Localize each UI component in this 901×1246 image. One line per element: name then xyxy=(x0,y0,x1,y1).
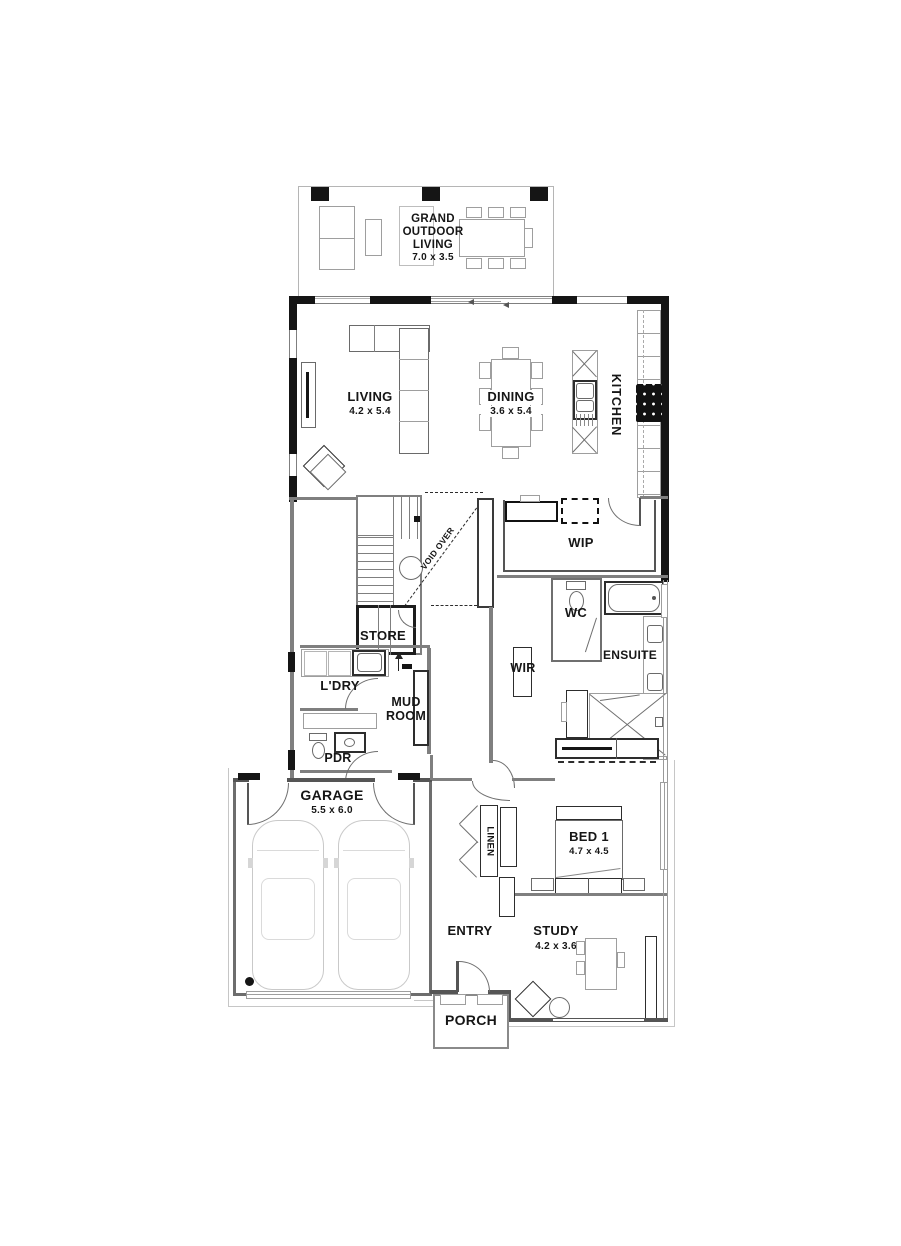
slab-line xyxy=(674,760,675,1027)
porch-label: PORCH xyxy=(440,1013,502,1029)
wall xyxy=(515,893,668,896)
toilet-cistern xyxy=(309,733,327,741)
bench-divider xyxy=(588,878,589,894)
wall xyxy=(289,303,669,304)
lounge-chair xyxy=(515,981,552,1018)
stair-bulkhead xyxy=(477,498,494,608)
desk-chair xyxy=(576,961,585,975)
window xyxy=(661,584,668,618)
porch-step xyxy=(477,994,503,1005)
wall xyxy=(290,500,294,780)
door-slide-arrow-icon xyxy=(468,299,474,305)
wall xyxy=(287,778,375,782)
tv xyxy=(306,372,309,418)
desk-drawer xyxy=(617,952,625,968)
bed1-dims: 4.7 x 4.5 xyxy=(560,847,618,858)
laundry-sink-bowl xyxy=(357,653,382,672)
door-lintel xyxy=(398,773,420,780)
sofa-divider xyxy=(399,421,429,422)
bifold-door xyxy=(459,841,478,860)
bedhead-shelf xyxy=(556,806,622,820)
wall xyxy=(640,496,668,499)
step-arrow-icon xyxy=(395,652,403,659)
basin xyxy=(647,625,663,643)
bifold-door xyxy=(459,824,478,843)
car-windshield xyxy=(343,850,405,851)
pdr-basin-bowl xyxy=(344,738,355,747)
outdoor-chair xyxy=(488,207,504,218)
slab-line xyxy=(228,1006,433,1007)
sink-drainer xyxy=(576,414,594,426)
wall xyxy=(370,296,431,304)
car-roof xyxy=(261,878,315,940)
newel-post xyxy=(414,516,420,522)
stacker-door xyxy=(431,298,552,299)
door-lintel xyxy=(238,773,260,780)
sink-bowl xyxy=(576,383,594,399)
kitchen-label: KITCHEN xyxy=(609,367,623,443)
fridge-space xyxy=(561,498,599,524)
bedside-table xyxy=(623,878,645,891)
wc-label: WC xyxy=(556,606,596,621)
porch-step xyxy=(440,994,466,1005)
basin xyxy=(647,673,663,691)
sofa-divider xyxy=(374,325,375,352)
window-jamb xyxy=(288,652,295,672)
sink-bowl xyxy=(576,400,594,412)
outdoor-chair xyxy=(510,258,526,269)
stair-line xyxy=(358,535,394,536)
front-door-arc xyxy=(459,961,490,992)
linen-label: LINEN xyxy=(484,813,495,869)
void-dashed-line xyxy=(425,492,483,493)
window-jamb xyxy=(288,750,295,770)
shower-head-icon xyxy=(655,717,663,727)
desk-chair xyxy=(576,941,585,955)
slab-line xyxy=(509,1026,675,1027)
ensuite-cabinet-knob xyxy=(561,702,567,722)
outdoor-chair xyxy=(488,258,504,269)
car-mirror xyxy=(409,858,414,868)
wall xyxy=(289,497,356,500)
bifold-door xyxy=(459,805,478,824)
outdoor-chair xyxy=(524,228,533,248)
slab-line xyxy=(414,1000,433,1001)
wall xyxy=(430,755,433,780)
wall xyxy=(512,778,555,781)
stacker-door xyxy=(431,301,501,302)
car-roof xyxy=(347,878,401,940)
ensuite-label: ENSUITE xyxy=(596,649,664,662)
garage-label: GARAGE xyxy=(290,788,374,804)
wall xyxy=(289,358,297,454)
pdr-label: PDR xyxy=(316,751,360,765)
sofa-divider xyxy=(399,390,429,391)
outdoor-side-table xyxy=(365,219,382,256)
pdr-shelf xyxy=(303,713,377,729)
washing-machine xyxy=(304,651,327,676)
dining-dims: 3.6 x 5.4 xyxy=(481,406,541,417)
outdoor-living-label: GRAND OUTDOOR LIVING xyxy=(390,213,476,252)
dining-chair xyxy=(479,362,491,379)
void-over-label: VOID OVER xyxy=(416,521,460,577)
hall-cabinet xyxy=(499,877,515,917)
stair-divider xyxy=(393,497,394,605)
car-windshield xyxy=(257,850,319,851)
entry-label: ENTRY xyxy=(444,924,496,939)
bed1-label: BED 1 xyxy=(560,830,618,845)
wall xyxy=(289,296,297,330)
dining-label: DINING xyxy=(481,390,541,405)
wip-bench-notch xyxy=(520,495,540,502)
dining-chair xyxy=(502,347,519,359)
hall-cabinet xyxy=(500,807,517,867)
study-label: STUDY xyxy=(530,924,582,939)
stair-treads xyxy=(358,537,394,605)
bedside-table xyxy=(531,878,554,891)
laundry-label: L'DRY xyxy=(312,679,368,694)
toilet-cistern xyxy=(566,581,586,590)
bifold-door xyxy=(459,860,477,878)
wall xyxy=(289,296,669,297)
bath-tap-icon xyxy=(652,596,656,600)
wardrobe-rail xyxy=(562,747,612,750)
small-annotation-mark xyxy=(402,664,412,669)
side-table-round xyxy=(549,997,570,1018)
post xyxy=(422,187,440,201)
living-dims: 4.2 x 5.4 xyxy=(340,406,400,417)
washing-machine xyxy=(328,651,351,676)
cooktop xyxy=(636,384,662,422)
wardrobe-shelf-dashed xyxy=(558,761,656,763)
mudroom-label: MUD ROOM xyxy=(380,695,432,723)
wall xyxy=(432,778,472,781)
step-arrow-line xyxy=(398,658,399,671)
floor-plan: GRAND OUTDOOR LIVING 7.0 x 3.5 LIVING 4.… xyxy=(0,0,901,1246)
window-midline xyxy=(664,782,665,870)
garage-dims: 5.5 x 6.0 xyxy=(290,805,374,816)
door-slide-arrow-icon xyxy=(503,302,509,308)
garage-door-line xyxy=(246,994,411,995)
sofa-chaise xyxy=(399,328,429,454)
garage-door-panel xyxy=(246,991,411,999)
dining-chair xyxy=(531,362,543,379)
living-label: LIVING xyxy=(340,390,400,405)
desk xyxy=(585,938,617,990)
post xyxy=(530,187,548,201)
sofa-divider xyxy=(399,359,429,360)
wall xyxy=(552,296,577,304)
outdoor-sofa-divider xyxy=(320,238,354,239)
car-mirror xyxy=(334,858,339,868)
car-mirror xyxy=(323,858,328,868)
outdoor-living-dims: 7.0 x 3.5 xyxy=(390,252,476,263)
void-dashed-line xyxy=(431,605,477,606)
floor-waste-icon xyxy=(245,977,254,986)
wall xyxy=(489,607,493,763)
outdoor-chair xyxy=(510,207,526,218)
wip-bench xyxy=(505,501,558,522)
wardrobe-divider xyxy=(616,738,617,759)
wall xyxy=(661,296,669,582)
dining-chair xyxy=(502,447,519,459)
slab-line xyxy=(228,768,229,1006)
wall xyxy=(300,645,430,648)
store-label: STORE xyxy=(356,629,410,644)
bed1-door-arc xyxy=(472,781,510,801)
wip-label: WIP xyxy=(556,536,606,551)
ensuite-cabinet xyxy=(566,690,588,738)
wir-label: WIR xyxy=(505,661,541,675)
car-mirror xyxy=(248,858,253,868)
post xyxy=(311,187,329,201)
window-midline xyxy=(553,1019,644,1021)
bookshelf xyxy=(645,936,657,1022)
study-dims: 4.2 x 3.6 xyxy=(530,941,582,952)
